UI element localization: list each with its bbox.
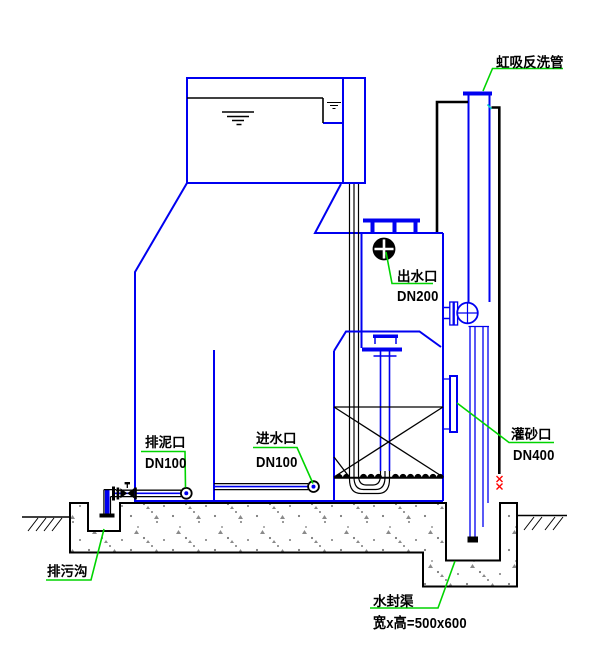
drawing-canvas: 虹吸反洗管 出水口 DN200 排泥口 DN100 进水口 DN100 灌砂口 … (0, 0, 600, 646)
inner-backwash-pipe (381, 352, 390, 472)
vessel-top-flange (363, 219, 420, 233)
label-siphon-backwash-pipe: 虹吸反洗管 (496, 51, 564, 71)
mud-drain-valve (112, 482, 137, 501)
inlet-pipe (214, 481, 319, 492)
check-valve-icon (444, 302, 478, 325)
water-level-line (187, 98, 323, 123)
label-sewage-ditch-name: 排污沟 (47, 560, 88, 580)
ground-line-right (517, 516, 567, 531)
drop-pipe-foot (468, 537, 479, 543)
backwash-standpipe (463, 92, 492, 303)
label-outlet-name: 出水口 (397, 265, 438, 285)
label-water-seal-name: 水封渠 (373, 590, 414, 610)
siphon-pipe (350, 184, 390, 494)
label-sand-fill-name: 灌砂口 (511, 423, 552, 443)
label-mud-drain-name: 排泥口 (145, 431, 186, 451)
leader-siphon (483, 69, 563, 92)
inner-pipe-flange (362, 335, 402, 357)
label-outlet-size: DN200 (397, 289, 439, 305)
label-water-seal-size: 宽x高=500x600 (373, 612, 467, 633)
ground-line-left (22, 517, 70, 531)
water-level-symbol-small (327, 103, 341, 109)
water-level-symbol (222, 112, 254, 125)
sand-port-flange (444, 376, 458, 432)
x-brace (334, 407, 443, 477)
diagram-svg (0, 0, 600, 646)
label-inlet-name: 进水口 (256, 427, 297, 447)
outlet-valve-icon (373, 238, 395, 260)
label-inlet-size: DN100 (256, 455, 298, 471)
backwash-drop-pipes (469, 327, 490, 538)
label-sand-fill-size: DN400 (513, 448, 555, 464)
label-mud-drain-size: DN100 (145, 456, 187, 472)
flow-marks (497, 476, 503, 490)
